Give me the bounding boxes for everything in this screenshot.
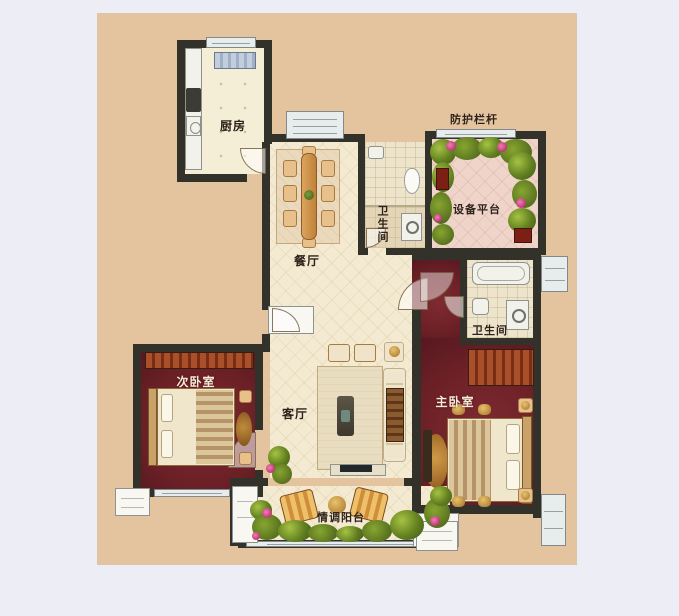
bath1-wall-bottom-a [358, 248, 368, 255]
floorplan-root: 厨房 防护栏杆 设备平台 卫生间 餐厅 卫生间 次卧室 客厅 主卧室 情调阳台 [0, 0, 679, 616]
master-bedroom-label: 主卧室 [430, 395, 480, 409]
living-lamp [389, 346, 400, 357]
kitchen-sink [186, 116, 201, 136]
kitchen-cabinet [214, 52, 256, 69]
dining-chair [283, 210, 297, 227]
bath2-wall-top [412, 252, 541, 260]
bath1-wall-left [358, 134, 365, 255]
bath2-label: 卫生间 [468, 324, 512, 338]
bedroom2-bed-blanket [196, 390, 233, 464]
bath1-zone-divider [365, 205, 425, 207]
bedroom2-pillow [161, 394, 173, 422]
west-wall-lower [262, 334, 270, 352]
master-pillow [506, 460, 520, 490]
platform-railing-window [436, 129, 516, 138]
kitchen-window [206, 37, 256, 48]
master-wardrobe [468, 349, 534, 386]
platform-planter [436, 168, 449, 190]
bedroom2-pillow [161, 430, 173, 458]
master-bed-blanket [449, 420, 491, 500]
dining-chair [321, 210, 335, 227]
plant [508, 152, 536, 180]
bedroom2-wall-right-a [255, 344, 263, 430]
bedroom2-wardrobe [145, 352, 254, 369]
bath1-washing-machine [401, 213, 422, 241]
bedroom2-label: 次卧室 [170, 375, 222, 389]
living-wall-bottom-b [404, 478, 421, 486]
kitchen-wall-right [264, 40, 272, 144]
living-coffee-table-decor [341, 410, 350, 422]
tv-screen [340, 465, 372, 472]
railing-label: 防护栏杆 [443, 113, 505, 127]
plant [336, 526, 364, 542]
flower [266, 464, 275, 473]
master-tv-cabinet [423, 430, 432, 482]
flower [516, 198, 526, 208]
master-bay-window [541, 494, 566, 546]
living-wall-bottom-a [238, 478, 268, 486]
master-stool [478, 496, 491, 507]
bath1-label: 卫生间 [376, 200, 389, 248]
bath2-wall-bottom [460, 338, 541, 345]
master-stool [452, 496, 465, 507]
east-wall [533, 252, 541, 518]
living-bookshelf [386, 388, 404, 442]
dining-chair [321, 160, 335, 177]
platform-wall-right [538, 131, 546, 255]
master-pillow [506, 424, 520, 454]
flower [434, 214, 442, 222]
dining-centerpiece [304, 190, 314, 200]
kitchen-wall-left [177, 40, 185, 182]
bath1-toilet [404, 168, 420, 194]
equipment-platform-label: 设备平台 [446, 203, 508, 217]
dining-bay-window [286, 111, 344, 139]
flower [252, 532, 260, 540]
living-label: 客厅 [279, 407, 311, 421]
master-lamp [521, 401, 530, 410]
plant [390, 510, 424, 540]
kitchen-label: 厨房 [209, 119, 257, 133]
bedroom2-window [154, 489, 230, 497]
bedroom2-nightstand [239, 452, 252, 465]
flower [446, 141, 456, 151]
living-armchair [328, 344, 350, 362]
kitchen-wall-bottom [177, 174, 247, 182]
kitchen-stove [186, 88, 201, 112]
plant [308, 524, 338, 542]
dining-label: 餐厅 [290, 254, 324, 268]
dining-chair [283, 160, 297, 177]
bath1-sink [368, 146, 384, 159]
bedroom2-nightstand [239, 390, 252, 403]
dining-chair [321, 185, 335, 202]
plant [432, 224, 454, 245]
bedroom2-headboard [148, 388, 157, 466]
flower [430, 516, 440, 526]
bath2-bathtub [472, 262, 530, 285]
bath2-sink [472, 298, 489, 315]
flower [497, 142, 507, 152]
plant [272, 464, 292, 484]
balcony-label: 情调阳台 [302, 511, 380, 525]
plant [430, 486, 452, 506]
flower [262, 508, 272, 518]
bedroom2-corner-window-box [115, 488, 150, 516]
master-lamp [521, 491, 530, 500]
bedroom2-wall-top [133, 344, 262, 352]
bedroom2-rug [236, 412, 252, 446]
platform-planter [514, 228, 532, 243]
dining-chair [283, 185, 297, 202]
living-armchair [354, 344, 376, 362]
bedroom2-wall-left [133, 344, 141, 497]
bath2-bay-window [541, 256, 568, 292]
